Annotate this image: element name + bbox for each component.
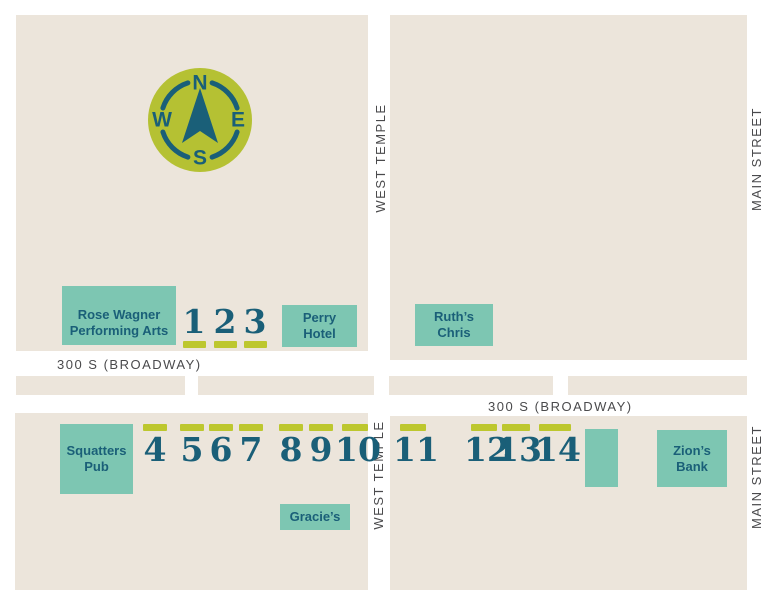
marker-13: 13 xyxy=(496,424,536,466)
compass-south-label: S xyxy=(193,147,207,170)
marker-11: 11 xyxy=(393,424,433,466)
building-ruths-chris: Ruth’s Chris xyxy=(415,304,493,346)
marker-10: 10 xyxy=(335,424,375,466)
building-label: Rose Wagner xyxy=(78,307,161,323)
street-label-broadway-right: 300 S (BROADWAY) xyxy=(488,399,633,414)
street-label-west-temple-top: WEST TEMPLE xyxy=(372,88,388,228)
building-rose-wagner: Rose Wagner Performing Arts xyxy=(62,286,176,345)
marker-number: 11 xyxy=(393,434,433,466)
marker-number: 14 xyxy=(535,434,575,466)
marker-number: 10 xyxy=(335,434,375,466)
marker-3: 3 xyxy=(235,306,275,348)
marker-dash-icon xyxy=(183,341,206,348)
marker-dash-icon xyxy=(214,341,237,348)
building-label: Perry xyxy=(303,310,336,326)
street-label-main-street-top: MAIN STREET xyxy=(748,89,764,229)
median-strip-4 xyxy=(568,376,747,395)
marker-number: 7 xyxy=(231,434,271,466)
compass-east-label: E xyxy=(231,109,245,132)
marker-4: 4 xyxy=(135,424,175,466)
building-perry-hotel: Perry Hotel xyxy=(282,305,357,347)
building-squatters-pub: Squatters Pub xyxy=(60,424,133,494)
marker-7: 7 xyxy=(231,424,271,466)
street-map: N E S W 300 S (BROADWAY) 300 S (BROADWAY… xyxy=(0,0,768,604)
building-label: Performing Arts xyxy=(70,323,168,339)
building-label: Squatters xyxy=(67,443,127,459)
building-unlabeled xyxy=(585,429,618,487)
median-strip-3 xyxy=(389,376,553,395)
building-label: Zion’s xyxy=(673,443,711,459)
building-zions-bank: Zion’s Bank xyxy=(657,430,727,487)
building-label: Chris xyxy=(437,325,470,341)
street-label-main-street-bottom: MAIN STREET xyxy=(748,407,764,547)
median-strip-2 xyxy=(198,376,374,395)
marker-14: 14 xyxy=(535,424,575,466)
compass-north-label: N xyxy=(192,72,207,95)
marker-number: 13 xyxy=(496,434,536,466)
marker-dash-icon xyxy=(244,341,267,348)
building-gracies: Gracie’s xyxy=(280,504,350,530)
street-label-broadway-left: 300 S (BROADWAY) xyxy=(57,357,202,372)
building-label: Bank xyxy=(676,459,708,475)
building-label: Pub xyxy=(84,459,109,475)
marker-number: 3 xyxy=(235,306,275,338)
marker-number: 4 xyxy=(135,434,175,466)
building-label: Ruth’s xyxy=(434,309,474,325)
compass-icon: N E S W xyxy=(145,65,255,175)
building-label: Hotel xyxy=(303,326,336,342)
compass-west-label: W xyxy=(152,109,172,132)
building-label: Gracie’s xyxy=(290,509,341,525)
median-strip-1 xyxy=(16,376,185,395)
